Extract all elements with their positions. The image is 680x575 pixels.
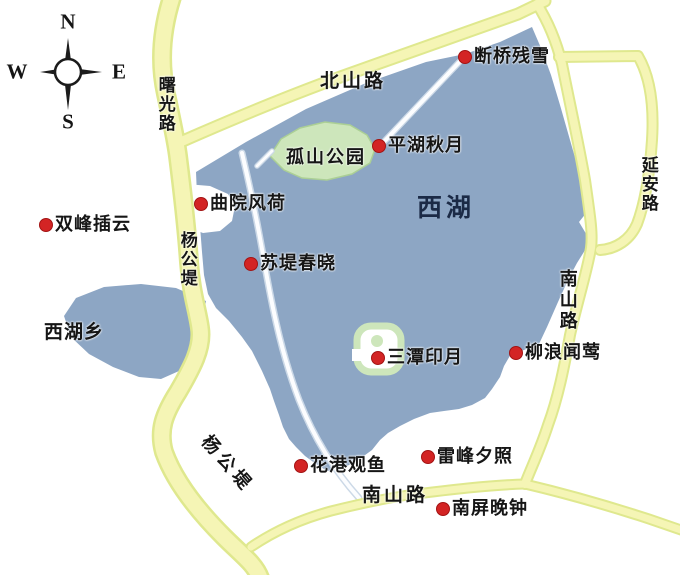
compass-label-n: N (60, 10, 75, 35)
road-label-shuguang: 曙光路 (155, 76, 174, 133)
poi-marker-sudi-chunxiao (244, 257, 258, 271)
xihuxiang-label: 西湖乡 (44, 322, 104, 343)
poi-marker-leifeng-xizhao (421, 450, 435, 464)
road-label-yanan: 延安路 (638, 156, 657, 213)
poi-label-sudi-chunxiao: 苏堤春晓 (260, 253, 336, 274)
santan-ring-gap (352, 349, 361, 361)
lake-name-label: 西湖 (417, 194, 475, 222)
poi-label-huagang-guanyu: 花港观鱼 (310, 455, 386, 476)
poi-label-nanping-wanzhong: 南屏晚钟 (452, 498, 528, 519)
compass-label-s: S (62, 110, 74, 135)
road-label-beishan: 北山路 (320, 71, 386, 92)
compass-label-w: W (7, 60, 28, 85)
poi-label-santan-yinyue: 三潭印月 (387, 347, 463, 368)
poi-label-pinghu-qiuyue: 平湖秋月 (388, 135, 464, 156)
compass-hub (55, 59, 81, 85)
road-label-nanshan-east: 南山路 (557, 269, 577, 332)
poi-label-leifeng-xizhao: 雷峰夕照 (437, 446, 513, 467)
poi-label-duanqiao-canxue: 断桥残雪 (474, 46, 550, 67)
poi-label-shuangfeng-chayun: 双峰插云 (55, 214, 131, 235)
poi-marker-duanqiao-canxue (458, 50, 472, 64)
poi-marker-liulang-wenying (509, 346, 523, 360)
poi-label-liulang-wenying: 柳浪闻莺 (525, 342, 601, 363)
santan-inner-islet-shape (371, 335, 383, 347)
poi-marker-nanping-wanzhong (436, 502, 450, 516)
poi-marker-huagang-guanyu (294, 459, 308, 473)
poi-label-quyuan-fenghe: 曲院风荷 (210, 193, 286, 214)
poi-marker-pinghu-qiuyue (372, 139, 386, 153)
west-lake-map: N S W E 曙光路 北山路 杨公堤 杨公堤 延安路 南山路 南山路 西湖 孤… (0, 0, 680, 575)
gushan-park-label: 孤山公园 (286, 148, 366, 168)
compass-rose (40, 38, 102, 110)
lake-shape (196, 27, 588, 471)
road-label-yanggong-upper: 杨公堤 (177, 231, 196, 288)
poi-marker-shuangfeng-chayun (39, 218, 53, 232)
road-label-nanshan-south: 南山路 (362, 485, 428, 506)
compass-label-e: E (112, 60, 126, 85)
poi-marker-quyuan-fenghe (194, 197, 208, 211)
road-southeast-exit (525, 484, 680, 531)
poi-marker-santan-yinyue (371, 351, 385, 365)
